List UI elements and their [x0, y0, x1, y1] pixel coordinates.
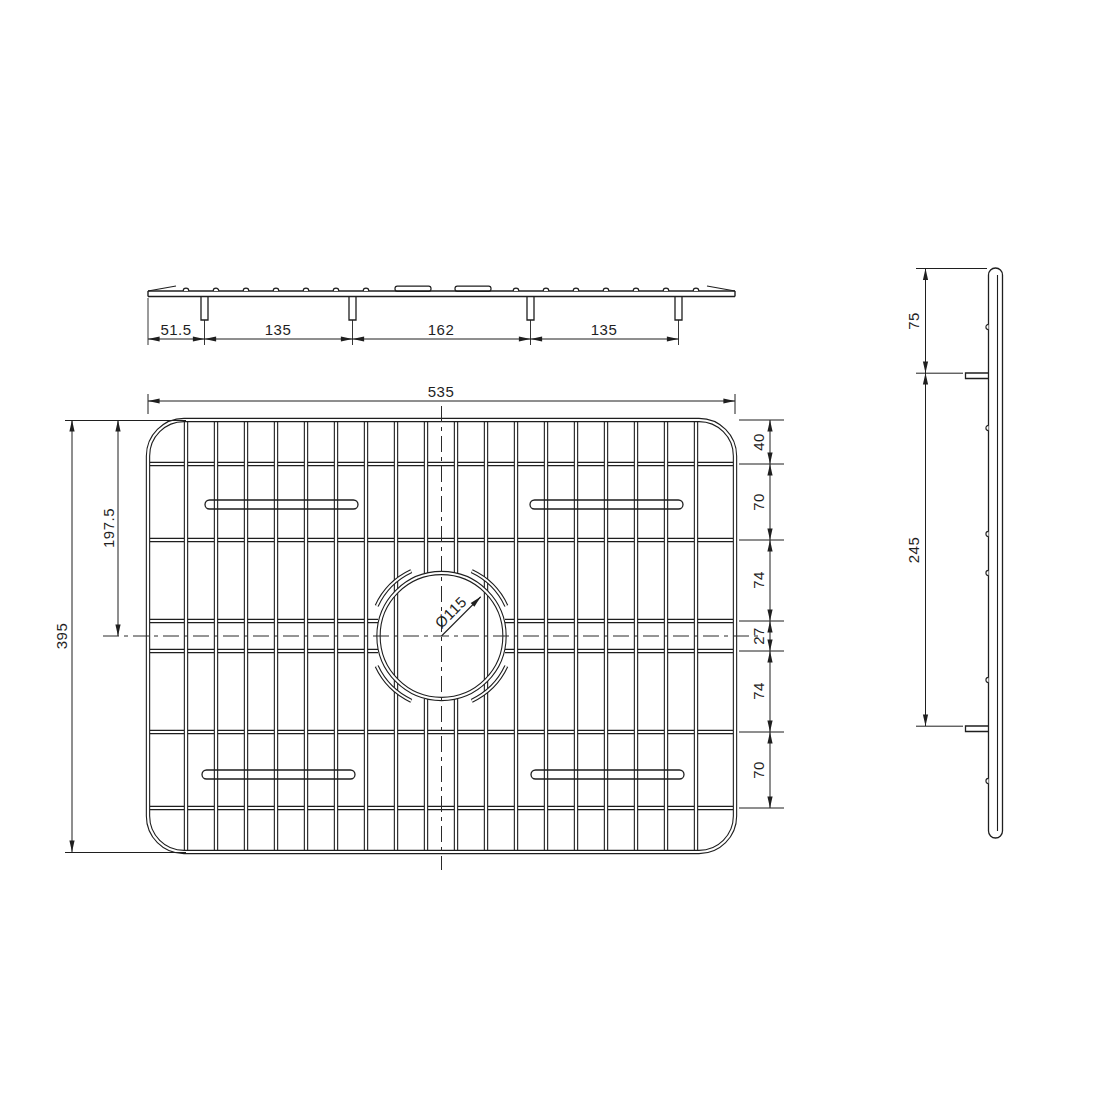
grid-foot	[966, 373, 989, 379]
wire-bump	[333, 288, 339, 291]
technical-drawing: 51.5 135 162 135 535 395 197.5 40 70 74 …	[0, 0, 1100, 1100]
plan-view	[65, 394, 784, 870]
wire-bump	[573, 288, 579, 291]
wire-bump	[363, 288, 369, 291]
wire-bump	[986, 531, 989, 536]
dim-foot-to-foot-label: 245	[905, 537, 922, 564]
drawing-canvas: 51.5 135 162 135 535 395 197.5 40 70 74 …	[0, 0, 1100, 1100]
dim-top-to-foot-label: 75	[905, 312, 922, 330]
dim-span1-label: 135	[265, 321, 292, 338]
dim-center-from-top-label: 197.5	[100, 508, 117, 548]
wire-bump	[663, 288, 669, 291]
corner-curl	[148, 286, 176, 291]
wire-bump	[986, 677, 989, 682]
wire-bump	[633, 288, 639, 291]
wire-bump	[543, 288, 549, 291]
dim-hole-diameter-label: Ø115	[431, 593, 470, 632]
wire-bend	[472, 666, 507, 701]
dim-span3-label: 135	[591, 321, 618, 338]
wire-bend	[472, 666, 507, 701]
hole-diameter-callout: Ø115	[428, 583, 481, 636]
dim-row-74a-label: 74	[750, 571, 767, 589]
side-profile-view	[916, 268, 1003, 838]
grid-foot	[675, 297, 682, 321]
dim-row-27-label: 27	[750, 627, 767, 645]
grid-edge-profile	[989, 268, 1003, 838]
wire-bump	[986, 778, 989, 783]
dim-row-74b-label: 74	[750, 682, 767, 700]
handle-slot	[202, 770, 355, 779]
wire-bump	[183, 288, 189, 291]
wire-bump	[986, 425, 989, 430]
wire-bump	[243, 288, 249, 291]
grid-foot	[966, 726, 989, 732]
dim-height-label: 395	[53, 623, 70, 650]
wire-bump	[303, 288, 309, 291]
grid-foot	[201, 297, 208, 321]
wire-bump	[603, 288, 609, 291]
wire-bump	[986, 570, 989, 575]
grid-foot	[527, 297, 534, 321]
wire-bump	[273, 288, 279, 291]
wire-bump	[693, 288, 699, 291]
wire-bump	[513, 288, 519, 291]
wire-bump	[213, 288, 219, 291]
dim-width-label: 535	[428, 383, 455, 400]
dim-row-70a-label: 70	[750, 493, 767, 511]
corner-curl	[707, 286, 735, 291]
dim-row-40-label: 40	[750, 433, 767, 451]
dim-span2-label: 162	[428, 321, 455, 338]
dim-row-70b-label: 70	[750, 761, 767, 779]
dim-left-offset-label: 51.5	[160, 321, 191, 338]
wire-bump	[986, 324, 989, 329]
grid-foot	[349, 297, 356, 321]
